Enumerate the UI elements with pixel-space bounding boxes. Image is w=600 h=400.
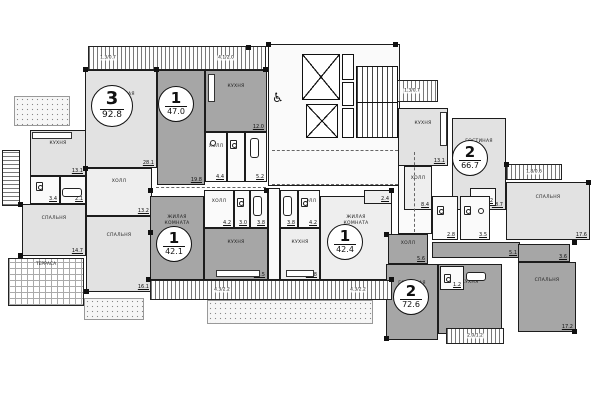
room-area: 5.6 — [417, 256, 425, 262]
corridor-dash-line — [414, 152, 415, 232]
room-area: 4.2 — [309, 220, 317, 226]
room: ХОЛЛ8.4 — [404, 166, 432, 210]
column-marker — [83, 67, 88, 72]
kitchen-counter — [32, 132, 72, 139]
balcony-hatch — [2, 150, 20, 206]
elevator-icon — [306, 104, 338, 138]
corridor-dash-line — [156, 187, 266, 188]
room: ХОЛЛ13.2 — [86, 168, 152, 216]
apartment-rooms-count: 3 — [100, 90, 125, 110]
column-marker — [18, 253, 23, 258]
shaft-cell — [342, 82, 354, 106]
toilet-icon — [444, 274, 451, 283]
tub_v-icon — [283, 196, 292, 216]
column-marker — [154, 67, 159, 72]
apartment-badge: 142.4 — [327, 224, 363, 260]
room-area: 3.4 — [49, 196, 57, 202]
room-area: 19.8 — [191, 177, 202, 183]
column-marker — [586, 180, 591, 185]
room-name: ХОЛЛ — [405, 176, 431, 182]
room-name: ЖИЛАЯ КОМНАТА — [321, 215, 391, 226]
room: 3.5 — [460, 196, 490, 240]
room: 5.1 — [432, 242, 520, 258]
apartment-badge: 147.0 — [158, 86, 194, 122]
kitchen-counter — [216, 270, 260, 277]
room: СПАЛЬНЯ14.7 — [22, 204, 86, 256]
room-name: ХОЛЛ — [87, 179, 151, 185]
dimension-label: 1.3/0.7 — [403, 89, 421, 94]
dimension-label: 4.3/2.2 — [349, 288, 367, 293]
apartment-badge: 272.6 — [393, 279, 429, 315]
room-area: 5.1 — [509, 250, 517, 256]
toilet-icon — [36, 182, 43, 191]
tub_v-icon — [250, 138, 259, 158]
stipple-pad — [14, 96, 70, 126]
kitchen-counter — [440, 112, 447, 146]
floor-plan: ГОСТИНАЯ28.1КУХНЯ13.13.42.1СПАЛЬНЯ14.7ХО… — [0, 0, 600, 400]
room-area: 3.8 — [257, 220, 265, 226]
tub_h-icon — [466, 272, 486, 281]
terrace-label: ТЕРРАСА — [9, 262, 83, 267]
apartment-total-area: 47.0 — [167, 107, 185, 117]
room-name: ХОЛЛ — [205, 199, 233, 205]
room-name: СПАЛЬНЯ — [507, 195, 589, 201]
apartment-total-area: 92.8 — [102, 110, 122, 121]
toilet-icon — [464, 206, 471, 215]
column-marker — [266, 42, 271, 47]
room-name: СПАЛЬНЯ — [519, 278, 575, 284]
room-name: ХОЛЛ — [389, 241, 427, 247]
room-area: 4.4 — [216, 174, 224, 180]
terrace: ТЕРРАСА — [8, 258, 84, 306]
room-name: СПАЛЬНЯ — [23, 216, 85, 222]
shaft-cell — [342, 54, 354, 80]
room-name: КУХНЯ — [31, 141, 85, 147]
column-marker — [148, 230, 153, 235]
room-area: 3.8 — [287, 220, 295, 226]
room-area: 28.1 — [143, 160, 154, 166]
room: ХОЛЛ4.2 — [298, 190, 320, 228]
room-area: 12.0 — [253, 124, 264, 130]
apartment-badge: 392.8 — [91, 85, 133, 127]
room-area: 2.4 — [381, 196, 389, 202]
room-name: ХОЛЛ — [206, 144, 226, 150]
room-area: 8.4 — [421, 202, 429, 208]
apartment-rooms-count: 2 — [459, 145, 481, 162]
column-marker — [146, 277, 151, 282]
apartment-total-area: 42.4 — [336, 245, 354, 255]
room-area: 4.2 — [223, 220, 231, 226]
apartment-rooms-count: 2 — [400, 284, 422, 301]
apartment-total-area: 72.6 — [402, 300, 420, 310]
room: 3.0 — [234, 190, 250, 228]
stipple-pad — [84, 298, 144, 320]
room-area: 1.2 — [453, 282, 461, 288]
room-area: 13.2 — [138, 208, 149, 214]
room-area: 16.1 — [138, 284, 149, 290]
stipple-pad — [207, 300, 373, 324]
room-area: 5.2 — [256, 174, 264, 180]
room: СПАЛЬНЯ17.2 — [518, 262, 576, 332]
column-marker — [18, 202, 23, 207]
room-name: СПАЛЬНЯ — [87, 233, 151, 239]
kitchen-counter — [208, 74, 215, 102]
dimension-label: 4.3/2.2 — [213, 288, 231, 293]
room: 2.4 — [364, 190, 392, 204]
sink-icon — [210, 140, 216, 146]
room-area: 3.6 — [559, 254, 567, 260]
column-marker — [148, 188, 153, 193]
toilet-icon — [230, 140, 237, 149]
apartment-total-area: 66.7 — [461, 161, 479, 171]
room-name: КУХНЯ — [206, 84, 266, 90]
column-marker — [572, 240, 577, 245]
column-marker — [504, 162, 509, 167]
room: ХОЛЛ4.4 — [205, 132, 227, 182]
room-name: ЖИЛАЯ КОМНАТА — [151, 215, 203, 226]
staircase — [356, 66, 398, 138]
column-marker — [263, 67, 268, 72]
column-marker — [393, 42, 398, 47]
apartment-total-area: 42.1 — [165, 247, 183, 257]
room: ХОЛЛ4.2 — [204, 190, 234, 228]
apartment-rooms-count: 1 — [165, 91, 187, 108]
room-area: 17.6 — [576, 232, 587, 238]
room-name: КУХНЯ — [281, 240, 319, 246]
wheelchair-icon: ♿ — [272, 92, 284, 105]
column-marker — [264, 188, 269, 193]
room: 3.4 — [30, 176, 60, 204]
corridor-dash-line — [272, 150, 398, 151]
column-marker — [389, 188, 394, 193]
room-area: 13.1 — [434, 158, 445, 164]
tub_h-icon — [62, 188, 82, 197]
apartment-rooms-count: 1 — [334, 229, 356, 246]
dimension-label: 1.3/0.7 — [99, 56, 117, 61]
column-marker — [83, 166, 88, 171]
apartment-badge: 266.7 — [452, 140, 488, 176]
corridor-dash-line — [272, 184, 398, 185]
room: 3.6 — [518, 244, 570, 262]
column-marker — [384, 232, 389, 237]
toilet-icon — [437, 206, 444, 215]
column-marker — [384, 336, 389, 341]
tub_v-icon — [253, 196, 262, 216]
room-area: 14.7 — [72, 248, 83, 254]
apartment-badge: 142.1 — [156, 226, 192, 262]
room-area: 3.0 — [239, 220, 247, 226]
kitchen-counter — [286, 270, 314, 277]
column-marker — [572, 329, 577, 334]
room: ХОЛЛ5.6 — [388, 234, 428, 264]
column-marker — [84, 289, 89, 294]
shaft-cell — [342, 108, 354, 138]
room: 2.8 — [432, 196, 458, 240]
room-area: 3.5 — [479, 232, 487, 238]
elevator-icon — [302, 54, 340, 100]
room — [268, 188, 280, 280]
room-area: 13.1 — [72, 168, 83, 174]
room: СПАЛЬНЯ17.6 — [506, 182, 590, 240]
dimension-label: 2.0/1.2 — [466, 334, 484, 339]
room-area: 2.8 — [447, 232, 455, 238]
toilet-icon — [301, 198, 308, 207]
dimension-label: 1.8/0.6 — [525, 170, 543, 175]
apartment-rooms-count: 1 — [163, 231, 185, 248]
room: СПАЛЬНЯ16.1 — [86, 216, 152, 292]
column-marker — [246, 45, 251, 50]
dimension-label: 4.1/2.0 — [217, 56, 235, 61]
sink-icon — [478, 208, 484, 214]
room-name: КУХНЯ — [205, 240, 267, 246]
toilet-icon — [237, 198, 244, 207]
column-marker — [389, 277, 394, 282]
